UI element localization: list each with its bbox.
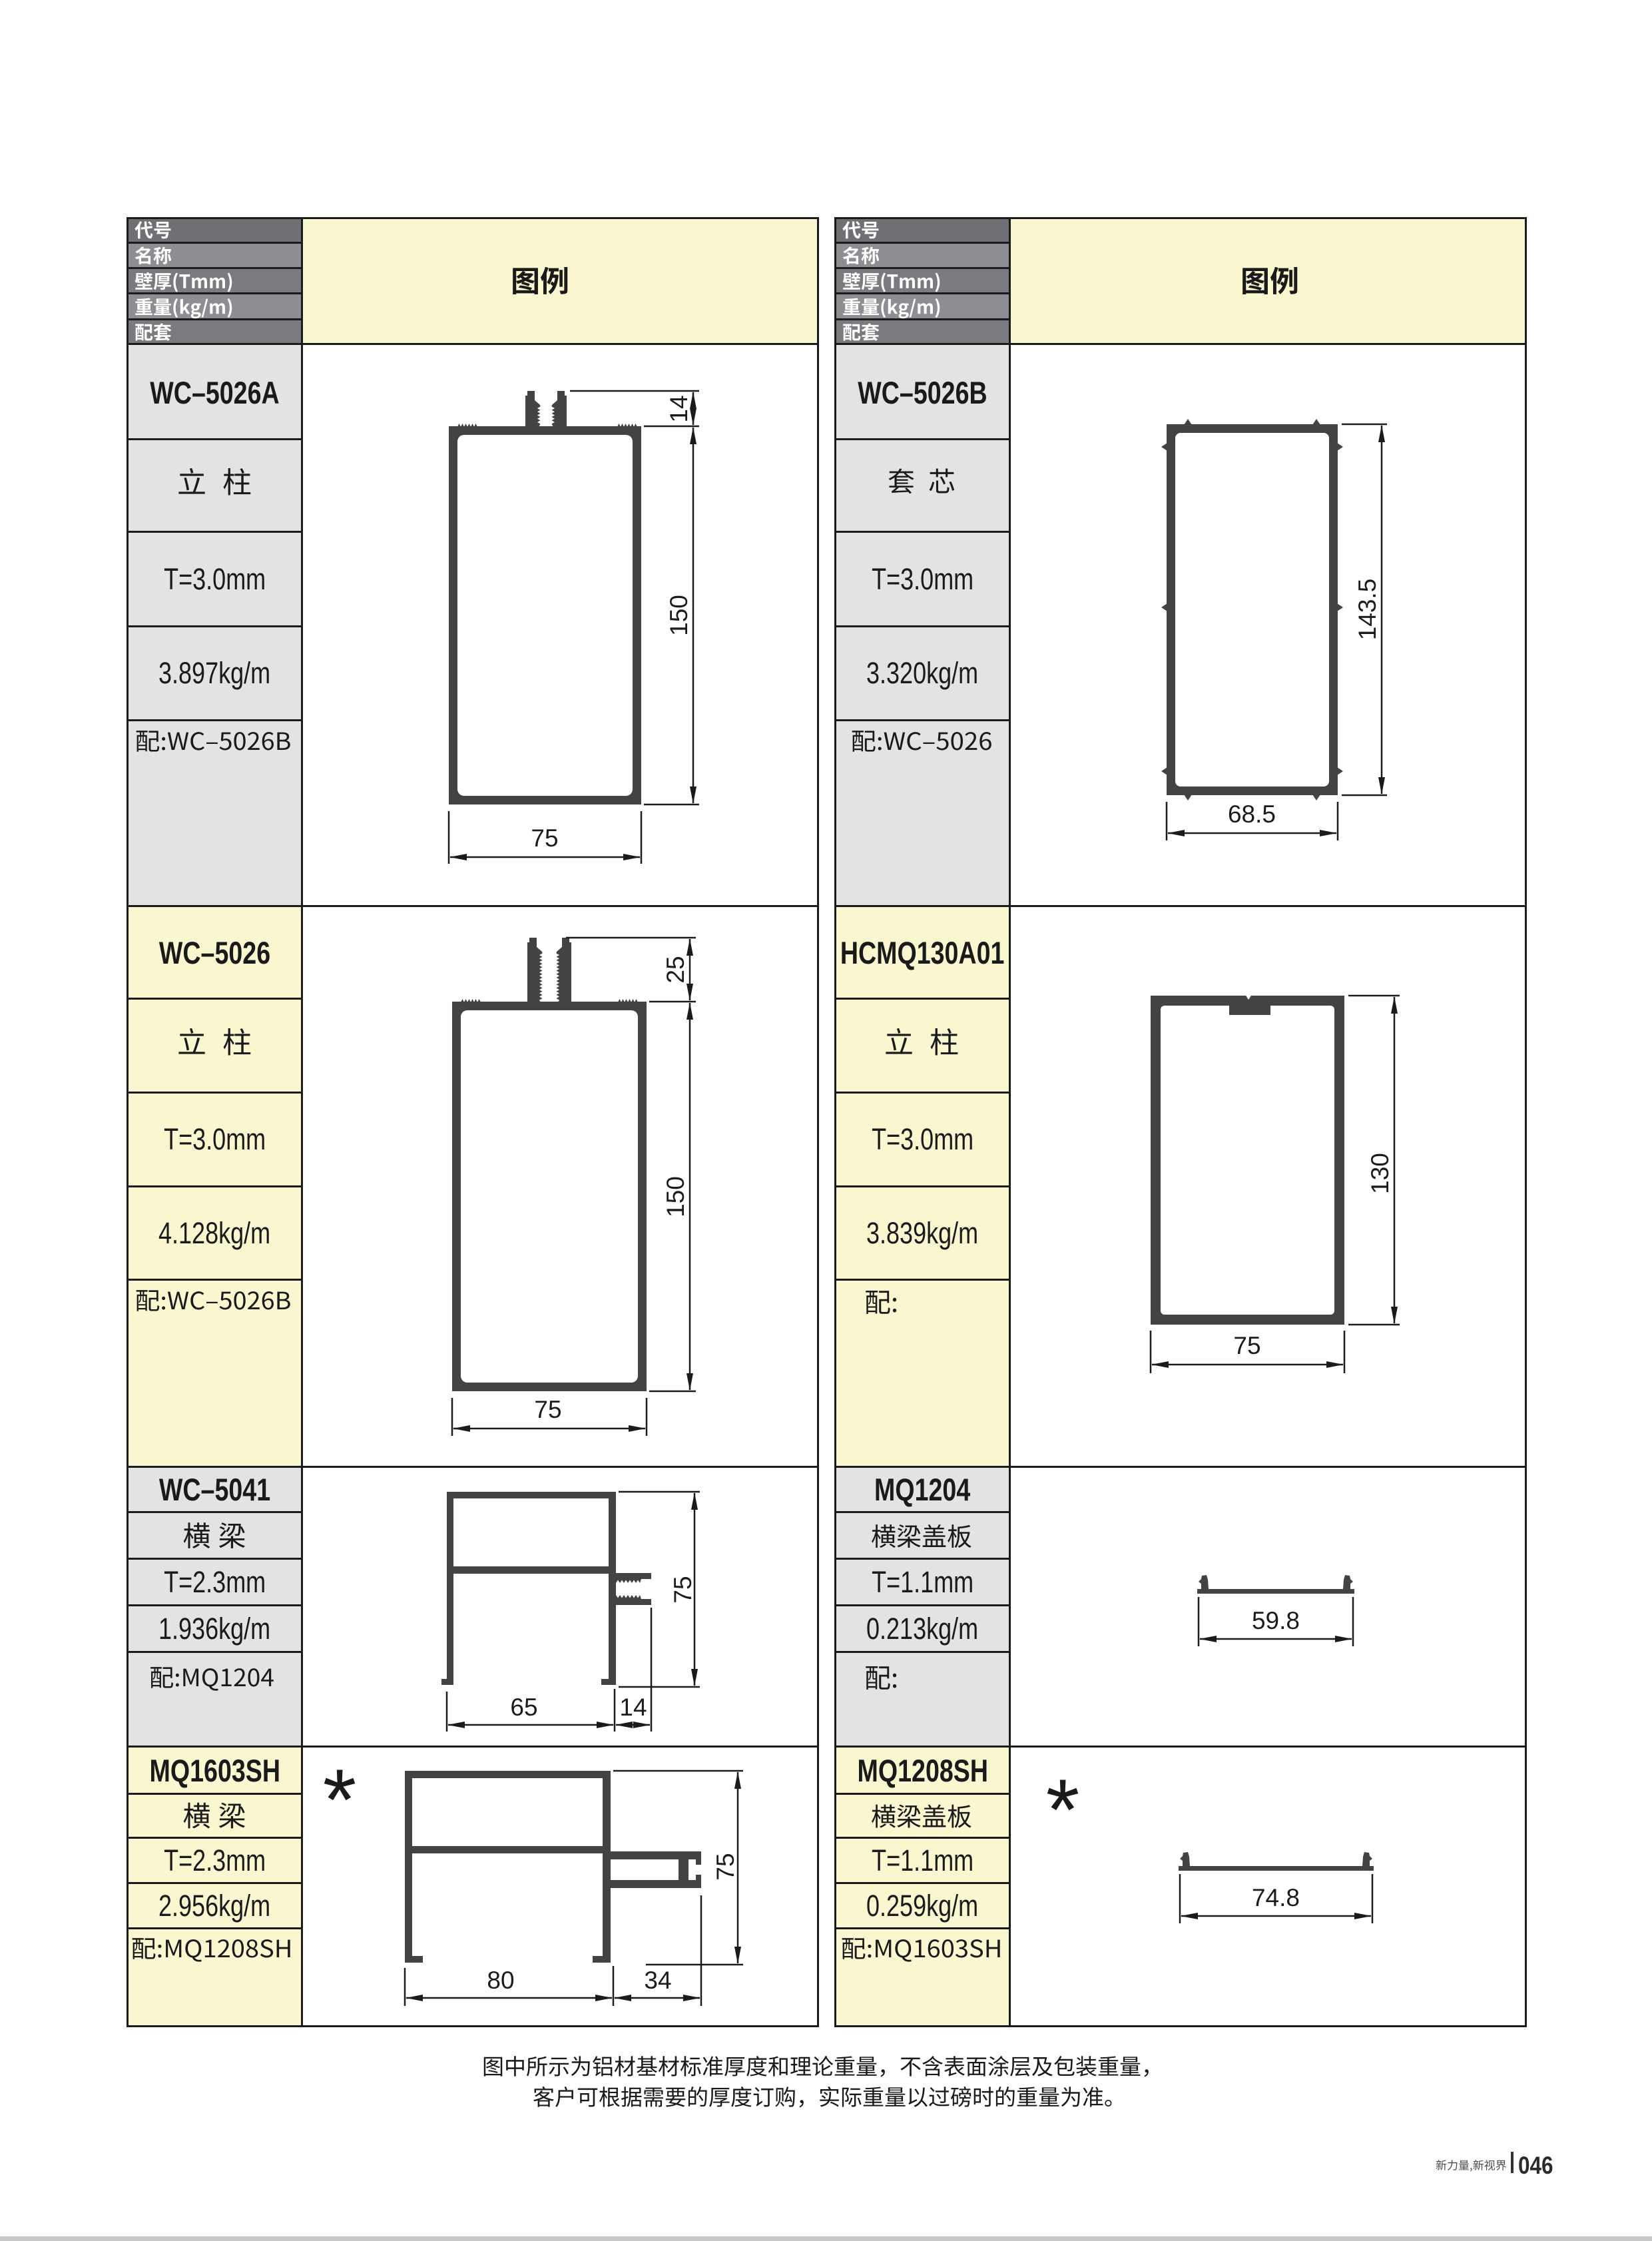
svg-text:25: 25	[662, 956, 689, 983]
svg-text:74.8: 74.8	[1252, 1884, 1300, 1911]
svg-text:65: 65	[510, 1694, 537, 1721]
svg-text:143.5: 143.5	[1354, 579, 1381, 641]
svg-text:*: *	[1046, 1761, 1080, 1858]
svg-text:150: 150	[662, 1176, 689, 1217]
svg-text:75: 75	[712, 1853, 739, 1880]
svg-text:68.5: 68.5	[1228, 800, 1276, 828]
svg-text:75: 75	[669, 1576, 696, 1603]
svg-text:75: 75	[1233, 1332, 1260, 1359]
svg-text:14: 14	[619, 1694, 647, 1721]
svg-text:*: *	[323, 1751, 357, 1848]
svg-text:59.8: 59.8	[1252, 1607, 1300, 1634]
svg-text:34: 34	[644, 1967, 671, 1994]
svg-text:130: 130	[1366, 1153, 1394, 1194]
svg-text:75: 75	[531, 824, 558, 852]
svg-text:14: 14	[665, 395, 692, 422]
svg-text:150: 150	[665, 595, 692, 636]
svg-text:80: 80	[487, 1967, 514, 1994]
svg-text:75: 75	[534, 1396, 561, 1423]
